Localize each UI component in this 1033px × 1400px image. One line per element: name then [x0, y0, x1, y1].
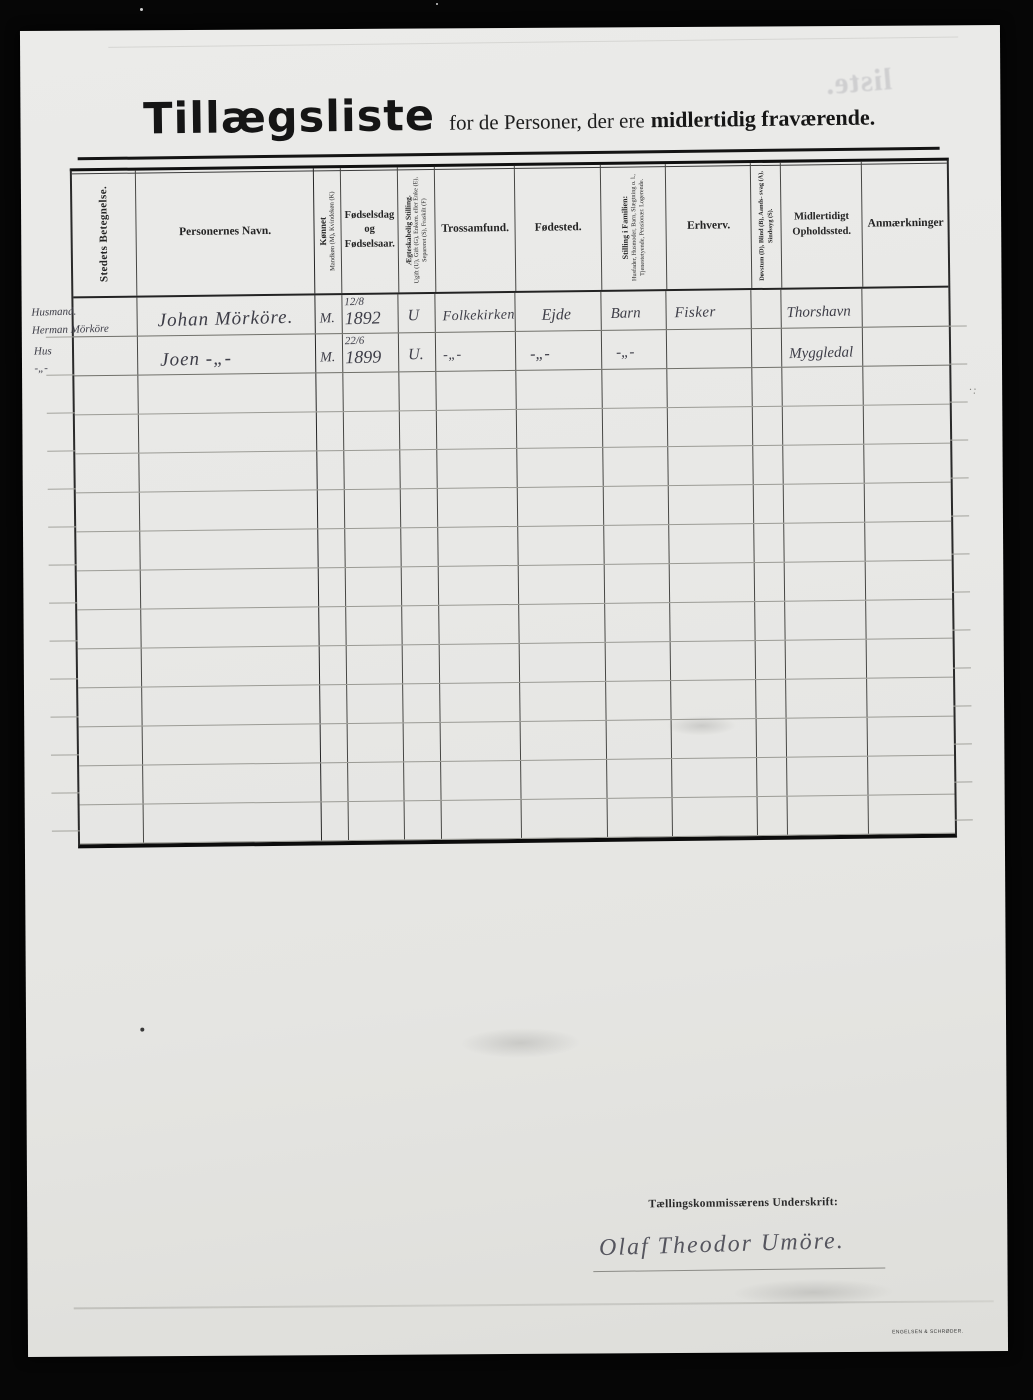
- cell-midlertidigt-opholdssted: Thorshavn: [781, 289, 862, 328]
- cell-foedested: [518, 526, 604, 565]
- rule-extension: [950, 401, 968, 402]
- cell-stedets-betegnelse: [78, 688, 142, 727]
- rule-extension: [953, 667, 971, 668]
- rule-extension: [954, 743, 972, 744]
- cell-doevstum: [752, 368, 782, 406]
- scan-artifact: ·:: [968, 384, 979, 397]
- cell-stedets-betegnelse: [80, 805, 144, 844]
- cell-personernes-navn: [142, 685, 320, 725]
- cell-midlertidigt-opholdssted: [785, 601, 866, 640]
- cell-midlertidigt-opholdssted: [783, 445, 864, 484]
- header-cell-midlertidigt-opholdssted: Midlertidigt Opholdssted.: [781, 162, 864, 288]
- cell-stilling-i-familien: [606, 642, 671, 681]
- cell-aegteskabelig-stilling: [400, 450, 437, 488]
- cell-stedets-betegnelse: [78, 649, 142, 688]
- cell-stedets-betegnelse: [74, 376, 138, 415]
- rule-extension: [950, 439, 968, 440]
- rule-extension: [50, 640, 78, 641]
- cell-aegteskabelig-stilling: U: [398, 294, 435, 332]
- cell-koennet: [321, 724, 348, 762]
- cell-aegteskabelig-stilling: [401, 528, 438, 566]
- cell-foedested: [517, 409, 603, 448]
- cell-erhverv: [668, 446, 753, 485]
- header-label: Erhverv.: [684, 218, 733, 234]
- cell-midlertidigt-opholdssted: [784, 523, 865, 562]
- cell-trossamfund: -„-: [436, 332, 516, 371]
- cell-doevstum: [755, 563, 785, 601]
- cell-foedested: [520, 682, 606, 721]
- cell-personernes-navn: [142, 646, 320, 686]
- cell-aegteskabelig-stilling: [399, 372, 436, 410]
- cell-foedselsdag: [344, 450, 400, 489]
- cell-doevstum: [756, 641, 786, 679]
- cell-anmaerkninger: [863, 366, 949, 405]
- cell-foedselsdag: [348, 723, 404, 762]
- header-cell-foedested: Fødested.: [515, 165, 603, 291]
- rule-extension: [954, 781, 972, 782]
- cell-foedested: [516, 370, 602, 409]
- cell-stedets-betegnelse: [75, 454, 139, 493]
- handwritten-stilling-i-familien: Barn: [610, 305, 640, 323]
- cell-erhverv: [673, 797, 758, 836]
- cell-aegteskabelig-stilling: [404, 723, 441, 761]
- header-label: Trossamfund.: [438, 221, 512, 237]
- signature-label: Tællingskommissærens Underskrift:: [648, 1196, 838, 1210]
- cell-foedselsdag: 22/6 1899: [343, 333, 399, 372]
- rule-extension: [953, 629, 971, 630]
- cell-anmaerkninger: [866, 600, 952, 639]
- handwritten-date-fraction: 22/6: [345, 334, 381, 347]
- cell-foedested: [519, 604, 605, 643]
- header-vertical-text: Stedets Betegnelse.: [97, 174, 112, 292]
- header-cell-erhverv: Erhverv.: [666, 163, 753, 289]
- signature-line: [593, 1268, 885, 1273]
- handwritten-foedselsdag: 12/8 1892: [344, 295, 381, 329]
- document-title: Tillægsliste: [143, 91, 435, 145]
- cell-foedselsdag: [345, 528, 401, 567]
- header-cell-aegteskabelig-stilling: Ægteskabelig Stilling.Ugift (U), Gift (G…: [398, 167, 437, 292]
- cell-foedested: [521, 760, 607, 799]
- cell-koennet: [318, 490, 345, 528]
- cell-stilling-i-familien: [605, 564, 670, 603]
- cell-midlertidigt-opholdssted: Myggledal: [782, 328, 863, 367]
- cell-stilling-i-familien: [604, 525, 669, 564]
- cell-stedets-betegnelse: [76, 493, 140, 532]
- cell-koennet: [320, 646, 347, 684]
- scan-artifact: [140, 8, 143, 11]
- cell-anmaerkninger: [866, 561, 952, 600]
- cell-foedselsdag: 12/8 1892: [342, 294, 398, 333]
- cell-erhverv: [669, 524, 754, 563]
- header-cell-personernes-navn: Personernes Navn.: [136, 168, 316, 295]
- scan-artifact: [140, 1028, 144, 1032]
- rule-extension: [953, 705, 971, 706]
- cell-midlertidigt-opholdssted: [787, 718, 868, 757]
- handwritten-date-year: 1892: [344, 307, 381, 329]
- cell-stilling-i-familien: [603, 447, 668, 486]
- cell-personernes-navn: [143, 763, 321, 803]
- cell-trossamfund: [439, 566, 519, 605]
- cell-midlertidigt-opholdssted: [785, 562, 866, 601]
- rule-extension: [47, 412, 75, 413]
- rule-extension: [49, 564, 77, 565]
- cell-personernes-navn: [139, 412, 317, 452]
- handwritten-midlertidigt-opholdssted: Thorshavn: [786, 303, 851, 322]
- cell-midlertidigt-opholdssted: [787, 757, 868, 796]
- handwritten-aegteskabelig-stilling: U.: [408, 346, 424, 364]
- title-rule: [78, 147, 940, 161]
- page-content: liste. Tillægslistefor de Personer, der …: [18, 22, 1014, 1360]
- cell-personernes-navn: [140, 490, 318, 530]
- cell-doevstum: [754, 524, 784, 562]
- cell-erhverv: [667, 329, 752, 368]
- cell-anmaerkninger: [862, 288, 948, 327]
- handwritten-foedested: Ejde: [541, 306, 571, 325]
- cell-foedested: [520, 643, 606, 682]
- cell-stilling-i-familien: [607, 759, 672, 798]
- cell-doevstum: [757, 719, 787, 757]
- cell-midlertidigt-opholdssted: [788, 796, 869, 835]
- cell-stilling-i-familien: [607, 720, 672, 759]
- scanned-census-page: liste. Tillægslistefor de Personer, der …: [0, 0, 1033, 1400]
- rule-extension: [51, 792, 79, 793]
- header-cell-foedselsdag: Fødselsdag og Fødselsaar.: [341, 167, 400, 293]
- cell-doevstum: [756, 680, 786, 718]
- handwritten-date-year: 1899: [345, 346, 382, 368]
- cell-foedselsdag: [346, 567, 402, 606]
- cell-koennet: [319, 607, 346, 645]
- cell-stilling-i-familien: [602, 369, 667, 408]
- header-cell-doevstum: Døvstum (D), Blind (B), Aands- svag (A),…: [751, 163, 783, 288]
- cell-aegteskabelig-stilling: [402, 567, 439, 605]
- handwritten-personernes-navn: Johan Mörköre.: [157, 307, 293, 333]
- rule-extension: [47, 450, 75, 451]
- cell-foedselsdag: [347, 684, 403, 723]
- handwritten-date-fraction: 12/8: [344, 295, 380, 308]
- cell-doevstum: [752, 329, 782, 367]
- cell-foedested: [518, 487, 604, 526]
- header-label: Fødselsdag og Fødselsaar.: [341, 209, 398, 252]
- header-cell-stilling-i-familien: Stilling i Familien:Husfader, Husmoder, …: [601, 164, 668, 290]
- cell-stilling-i-familien: [606, 681, 671, 720]
- cell-personernes-navn: [144, 802, 322, 842]
- cell-stedets-betegnelse: [79, 727, 143, 766]
- cell-trossamfund: [441, 722, 521, 761]
- cell-koennet: M.: [315, 295, 342, 333]
- cell-personernes-navn: [139, 451, 317, 491]
- cell-trossamfund: [442, 800, 522, 839]
- cell-koennet: [318, 529, 345, 567]
- cell-foedselsdag: [347, 645, 403, 684]
- cell-foedested: [521, 721, 607, 760]
- cell-midlertidigt-opholdssted: [784, 484, 865, 523]
- handwritten-trossamfund: Folkekirken: [442, 307, 515, 325]
- cell-personernes-navn: [143, 724, 321, 764]
- cell-koennet: [319, 568, 346, 606]
- rule-extension: [48, 526, 76, 527]
- cell-trossamfund: [440, 644, 520, 683]
- cell-doevstum: [753, 407, 783, 445]
- header-cell-stedets-betegnelse: Stedets Betegnelse.: [72, 171, 138, 297]
- handwritten-trossamfund: -„-: [443, 347, 462, 363]
- cell-stilling-i-familien: [605, 603, 670, 642]
- cell-anmaerkninger: [869, 795, 955, 834]
- cell-stedets-betegnelse: [79, 766, 143, 805]
- cell-erhverv: [668, 407, 753, 446]
- cell-personernes-navn: Joen -„-: [138, 334, 316, 374]
- rule-extension: [51, 754, 79, 755]
- cell-aegteskabelig-stilling: [404, 762, 441, 800]
- cell-koennet: [316, 373, 343, 411]
- rule-extension: [951, 477, 969, 478]
- cell-stedets-betegnelse: [76, 532, 140, 571]
- cell-foedselsdag: [345, 489, 401, 528]
- cell-koennet: [320, 685, 347, 723]
- handwritten-aegteskabelig-stilling: U: [407, 307, 419, 325]
- rule-extension: [50, 716, 78, 717]
- cell-aegteskabelig-stilling: [400, 411, 437, 449]
- cell-anmaerkninger: [864, 405, 950, 444]
- rule-extension: [52, 830, 80, 831]
- cell-stilling-i-familien: [604, 486, 669, 525]
- handwritten-stedets-betegnelse: Hus -„-: [34, 341, 155, 377]
- cell-doevstum: [754, 485, 784, 523]
- cell-foedselsdag: [343, 372, 399, 411]
- cell-aegteskabelig-stilling: [401, 489, 438, 527]
- cell-stilling-i-familien: [603, 408, 668, 447]
- commissioner-signature: Olaf Theodor Umöre.: [599, 1228, 845, 1262]
- header-sublabel: Mandkøn (M), Kvindekøn (K): [328, 172, 338, 290]
- cell-trossamfund: [439, 605, 519, 644]
- rule-extension: [48, 488, 76, 489]
- cell-anmaerkninger: [867, 639, 953, 678]
- rule-extension: [949, 325, 967, 326]
- handwritten-stedets-betegnelse: Husmand. Herman Mörköre: [31, 301, 152, 339]
- rule-extension: [952, 591, 970, 592]
- header-sublabel: Husfader, Husmoder, Barn, Slægtning o. l…: [630, 168, 648, 286]
- cell-aegteskabelig-stilling: [402, 606, 439, 644]
- cell-personernes-navn: [138, 373, 316, 413]
- document-subtitle-emphasis: midlertidig fraværende.: [651, 105, 876, 133]
- header-vertical-text: Stilling i Familien:Husfader, Husmoder, …: [620, 168, 648, 286]
- cell-aegteskabelig-stilling: [405, 801, 442, 839]
- rule-extension: [955, 819, 973, 820]
- cell-foedselsdag: [349, 801, 405, 840]
- cell-stilling-i-familien: [608, 798, 673, 837]
- cell-trossamfund: [438, 488, 518, 527]
- cell-foedested: [522, 799, 608, 838]
- cell-stedets-betegnelse: Husmand. Herman Mörköre: [73, 298, 137, 337]
- cell-anmaerkninger: [865, 483, 951, 522]
- cell-koennet: [317, 412, 344, 450]
- cell-trossamfund: [440, 683, 520, 722]
- cell-midlertidigt-opholdssted: [782, 367, 863, 406]
- header-vertical-text: KønnetMandkøn (M), Kvindekøn (K): [317, 172, 338, 290]
- cell-midlertidigt-opholdssted: [786, 640, 867, 679]
- cell-trossamfund: [437, 449, 517, 488]
- cell-foedested: Ejde: [515, 292, 601, 331]
- header-sublabel: Ugift (U), Gift (G), Enkem. eller Enke (…: [413, 171, 431, 289]
- cell-midlertidigt-opholdssted: [786, 679, 867, 718]
- cell-stedets-betegnelse: [75, 415, 139, 454]
- handwritten-foedested: -„-: [530, 345, 550, 364]
- document-subtitle: for de Personer, der ere: [449, 108, 645, 134]
- cell-doevstum: [758, 797, 788, 835]
- cell-doevstum: [757, 758, 787, 796]
- rule-extension: [49, 602, 77, 603]
- cell-stedets-betegnelse: Hus -„-: [74, 337, 138, 376]
- header-label: Personernes Navn.: [176, 224, 274, 241]
- cell-foedested: [517, 448, 603, 487]
- cell-trossamfund: [436, 371, 516, 410]
- cell-personernes-navn: [140, 529, 318, 569]
- cell-anmaerkninger: [868, 717, 954, 756]
- handwritten-foedselsdag: 22/6 1899: [345, 334, 382, 368]
- cell-foedested: -„-: [516, 331, 602, 370]
- document-header: Tillægslistefor de Personer, der eremidl…: [79, 85, 940, 146]
- cell-stedets-betegnelse: [77, 610, 141, 649]
- handwritten-koennet: M.: [319, 311, 335, 327]
- cell-foedested: [519, 565, 605, 604]
- cell-erhverv: [669, 485, 754, 524]
- cell-personernes-navn: Johan Mörköre.: [137, 295, 315, 335]
- cell-koennet: [322, 802, 349, 840]
- rule-extension: [50, 678, 78, 679]
- header-label: Midlertidigt Opholdssted.: [781, 210, 861, 239]
- cell-anmaerkninger: [867, 678, 953, 717]
- header-cell-trossamfund: Trossamfund.: [435, 166, 517, 292]
- cell-trossamfund: Folkekirken: [435, 293, 515, 332]
- cell-erhverv: [670, 602, 755, 641]
- header-cell-koennet: KønnetMandkøn (M), Kvindekøn (K): [314, 168, 343, 293]
- cell-stilling-i-familien: Barn: [601, 291, 666, 330]
- cell-foedselsdag: [348, 762, 404, 801]
- scan-artifact: [108, 37, 958, 48]
- header-cell-anmaerkninger: Anmærkninger: [862, 161, 950, 287]
- cell-aegteskabelig-stilling: [403, 645, 440, 683]
- cell-koennet: [317, 451, 344, 489]
- cell-stilling-i-familien: -„-: [602, 330, 667, 369]
- handwritten-midlertidigt-opholdssted: Myggledal: [789, 344, 854, 363]
- cell-aegteskabelig-stilling: U.: [399, 333, 436, 371]
- rule-extension: [949, 363, 967, 364]
- header-label: Fødested.: [532, 220, 585, 236]
- cell-erhverv: [671, 641, 756, 680]
- cell-doevstum: [751, 290, 781, 328]
- cell-doevstum: [753, 446, 783, 484]
- cell-erhverv: [670, 563, 755, 602]
- cell-personernes-navn: [141, 607, 319, 647]
- cell-erhverv: Fisker: [666, 290, 751, 329]
- census-table: Stedets Betegnelse.Personernes Navn.Kønn…: [70, 158, 957, 849]
- cell-aegteskabelig-stilling: [403, 684, 440, 722]
- scan-artifact: [436, 3, 438, 5]
- cell-trossamfund: [437, 410, 517, 449]
- table-header-row: Stedets Betegnelse.Personernes Navn.Kønn…: [72, 161, 948, 299]
- cell-anmaerkninger: [863, 327, 949, 366]
- cell-erhverv: [672, 758, 757, 797]
- header-vertical-text: Døvstum (D), Blind (B), Aands- svag (A),…: [757, 166, 775, 284]
- cell-trossamfund: [441, 761, 521, 800]
- cell-koennet: M.: [316, 334, 343, 372]
- cell-anmaerkninger: [865, 522, 951, 561]
- handwritten-personernes-navn: Joen -„-: [160, 348, 232, 372]
- header-vertical-text: Ægteskabelig Stilling.Ugift (U), Gift (G…: [403, 171, 430, 289]
- cell-erhverv: [667, 368, 752, 407]
- printer-mark: ENGELSEN & SCHRØDER.: [892, 1329, 963, 1336]
- cell-stedets-betegnelse: [77, 571, 141, 610]
- cell-erhverv: [671, 680, 756, 719]
- header-label: Døvstum (D), Blind (B), Aands- svag (A),…: [757, 166, 775, 284]
- rule-extension: [951, 515, 969, 516]
- cell-foedselsdag: [346, 606, 402, 645]
- header-label: Stedets Betegnelse.: [97, 174, 112, 292]
- cell-personernes-navn: [141, 568, 319, 608]
- cell-anmaerkninger: [864, 444, 950, 483]
- rule-extension: [952, 553, 970, 554]
- cell-koennet: [321, 763, 348, 801]
- scan-artifact: [460, 1027, 580, 1058]
- handwritten-koennet: M.: [320, 350, 336, 366]
- header-label: Anmærkninger: [865, 215, 947, 232]
- paper-sheet: liste. Tillægslistefor de Personer, der …: [20, 25, 1008, 1357]
- handwritten-erhverv: Fisker: [674, 304, 716, 322]
- cell-trossamfund: [438, 527, 518, 566]
- handwritten-stilling-i-familien: -„-: [616, 344, 635, 361]
- cell-midlertidigt-opholdssted: [783, 406, 864, 445]
- cell-doevstum: [755, 602, 785, 640]
- cell-foedselsdag: [344, 411, 400, 450]
- cell-anmaerkninger: [868, 756, 954, 795]
